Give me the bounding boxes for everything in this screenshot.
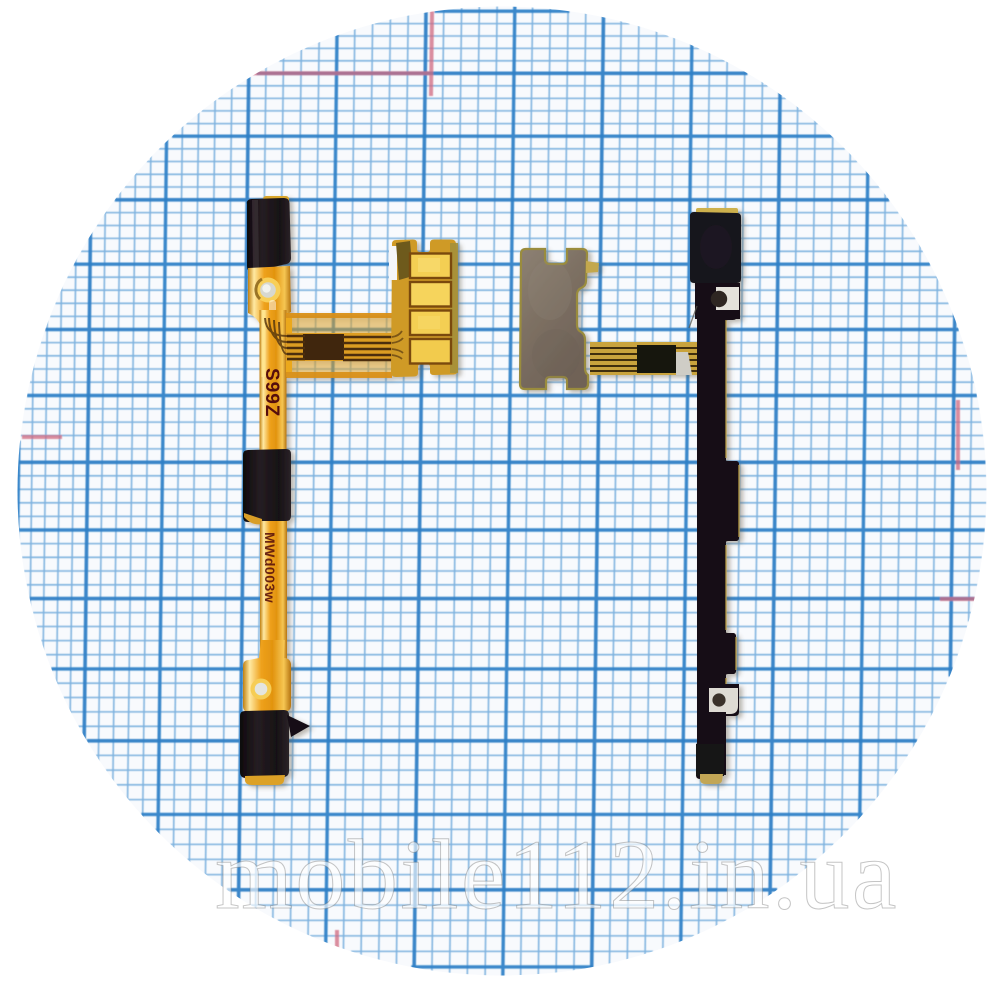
svg-text:S99Z: S99Z (261, 368, 282, 417)
svg-text:MWd003w: MWd003w (262, 532, 278, 603)
svg-text:mobile112.in.ua: mobile112.in.ua (215, 819, 899, 930)
